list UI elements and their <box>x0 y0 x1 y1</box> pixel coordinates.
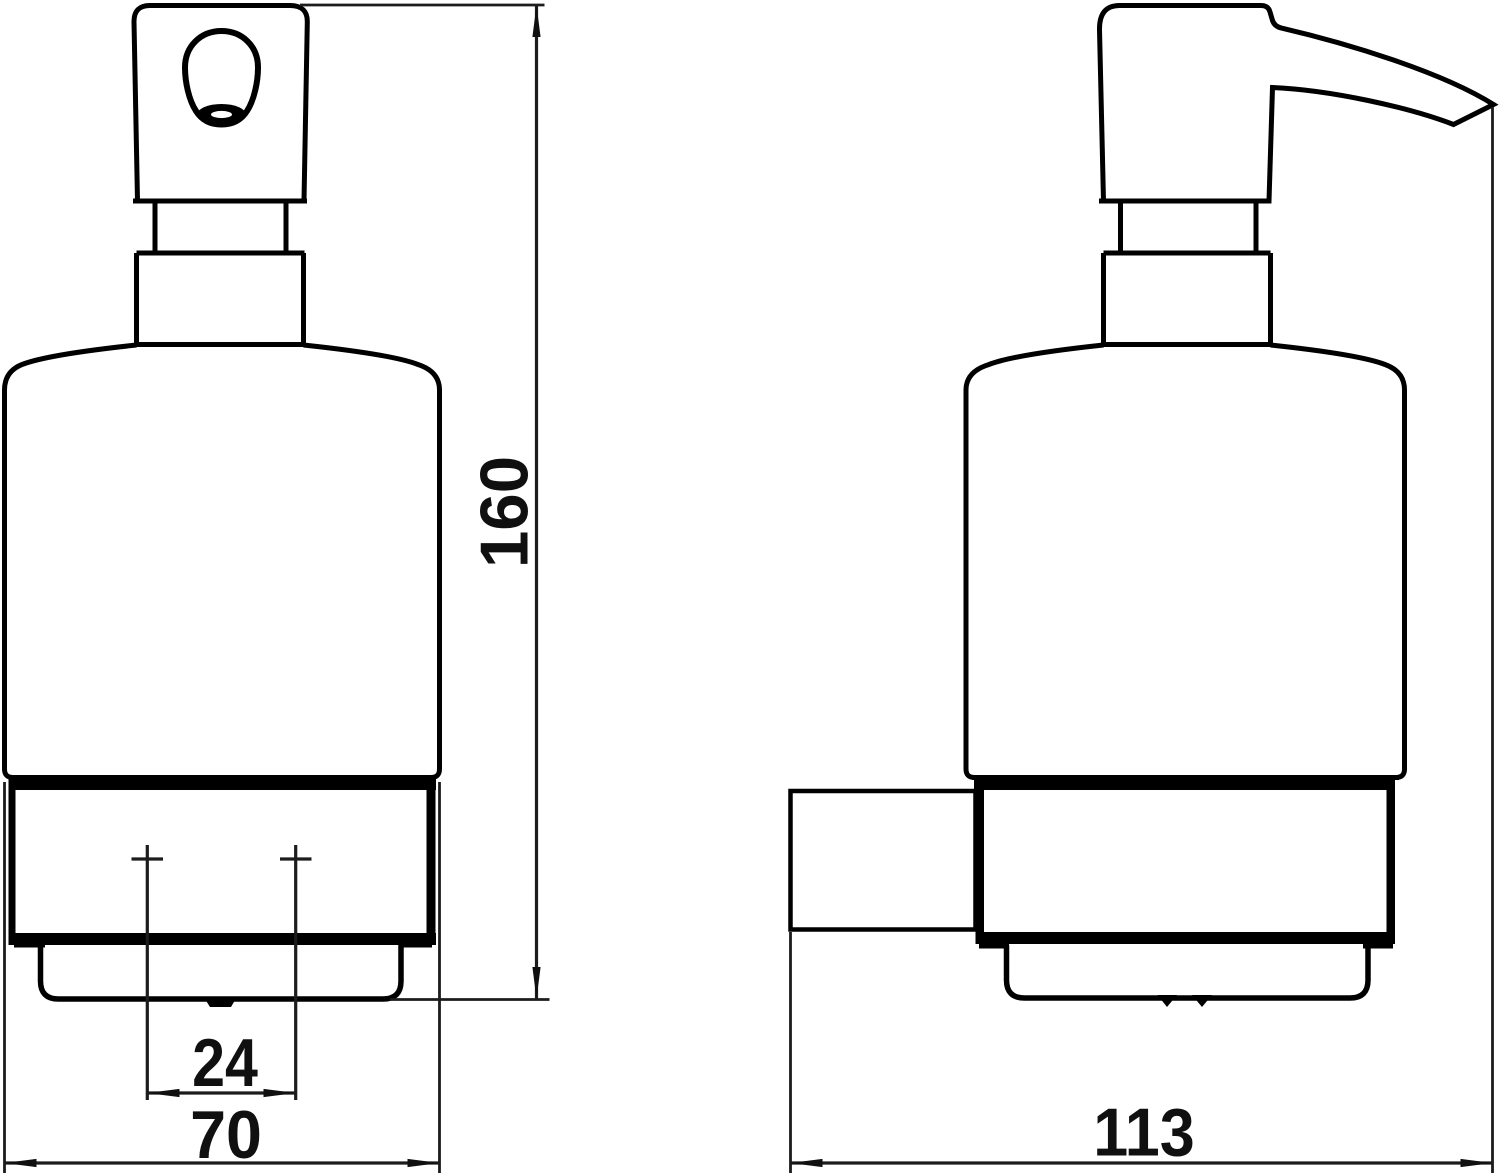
svg-text:70: 70 <box>190 1098 262 1173</box>
svg-text:113: 113 <box>1093 1094 1194 1170</box>
svg-text:160: 160 <box>467 456 542 568</box>
svg-text:24: 24 <box>192 1024 258 1101</box>
